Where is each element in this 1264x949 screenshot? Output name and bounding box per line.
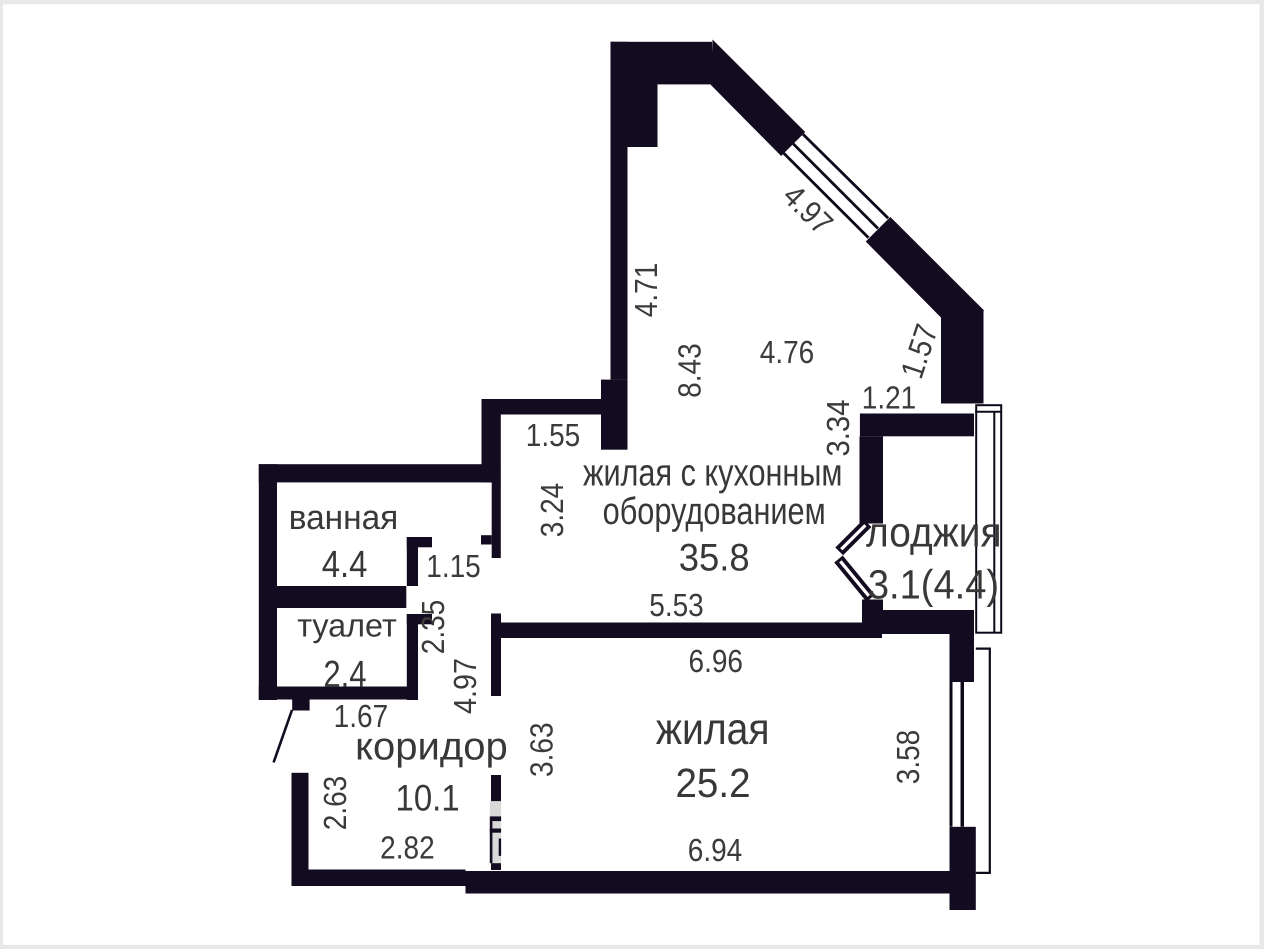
svg-text:2.63: 2.63: [317, 776, 353, 831]
svg-text:10.1: 10.1: [396, 778, 460, 819]
svg-text:4.4: 4.4: [322, 544, 368, 586]
svg-text:4.71: 4.71: [628, 263, 664, 318]
svg-text:3.34: 3.34: [820, 400, 856, 457]
svg-text:1.55: 1.55: [526, 417, 581, 453]
svg-text:1.67: 1.67: [334, 698, 389, 734]
svg-text:4.76: 4.76: [760, 334, 815, 370]
svg-text:2.82: 2.82: [380, 830, 435, 866]
svg-text:3.58: 3.58: [890, 730, 926, 785]
svg-text:ванная: ванная: [289, 499, 399, 537]
svg-text:жилая с кухонным: жилая с кухонным: [583, 453, 843, 495]
svg-text:35.8: 35.8: [679, 537, 750, 580]
svg-text:8.43: 8.43: [671, 343, 707, 398]
svg-text:5.53: 5.53: [649, 587, 704, 623]
svg-text:1.21: 1.21: [862, 379, 917, 415]
svg-text:жилая: жилая: [656, 705, 770, 754]
svg-text:1.15: 1.15: [426, 548, 481, 584]
svg-text:6.94: 6.94: [688, 832, 743, 868]
svg-text:25.2: 25.2: [675, 760, 750, 806]
svg-text:3.1(4.4): 3.1(4.4): [868, 561, 999, 607]
svg-text:3.63: 3.63: [524, 722, 560, 777]
svg-text:оборудованием: оборудованием: [603, 491, 826, 533]
svg-text:3.24: 3.24: [534, 483, 570, 538]
svg-text:туалет: туалет: [297, 607, 397, 643]
svg-text:4.97: 4.97: [447, 658, 483, 714]
svg-text:2.4: 2.4: [323, 654, 366, 696]
svg-text:2.35: 2.35: [415, 600, 451, 655]
svg-text:6.96: 6.96: [689, 643, 744, 679]
svg-text:лоджия: лоджия: [866, 508, 1002, 555]
